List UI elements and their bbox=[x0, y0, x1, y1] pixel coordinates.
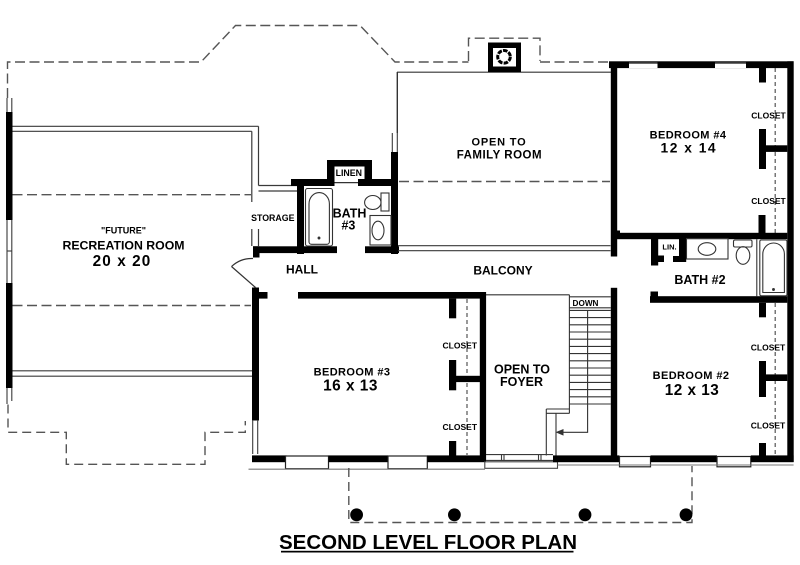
svg-text:"FUTURE": "FUTURE" bbox=[101, 226, 146, 236]
svg-text:#3: #3 bbox=[341, 218, 355, 232]
svg-text:CLOSET: CLOSET bbox=[751, 421, 786, 431]
svg-text:CLOSET: CLOSET bbox=[751, 343, 786, 353]
svg-text:HALL: HALL bbox=[286, 263, 318, 277]
svg-text:CLOSET: CLOSET bbox=[443, 422, 478, 432]
svg-text:16 x 13: 16 x 13 bbox=[323, 378, 378, 395]
svg-text:CLOSET: CLOSET bbox=[751, 111, 786, 121]
svg-text:SECOND LEVEL FLOOR PLAN: SECOND LEVEL FLOOR PLAN bbox=[279, 531, 577, 554]
svg-text:CLOSET: CLOSET bbox=[443, 341, 478, 351]
svg-text:BEDROOM #2: BEDROOM #2 bbox=[653, 370, 730, 382]
svg-text:CLOSET: CLOSET bbox=[751, 196, 786, 206]
svg-text:12 x 14: 12 x 14 bbox=[661, 140, 718, 155]
svg-text:FAMILY ROOM: FAMILY ROOM bbox=[457, 149, 542, 161]
svg-text:STORAGE: STORAGE bbox=[251, 213, 294, 223]
svg-text:BALCONY: BALCONY bbox=[473, 264, 532, 278]
svg-text:FOYER: FOYER bbox=[500, 375, 543, 389]
svg-text:RECREATION ROOM: RECREATION ROOM bbox=[62, 239, 184, 253]
svg-text:OPEN TO: OPEN TO bbox=[472, 136, 527, 148]
svg-text:DOWN: DOWN bbox=[573, 299, 599, 308]
svg-text:12 x 13: 12 x 13 bbox=[665, 382, 720, 399]
svg-text:20 x 20: 20 x 20 bbox=[93, 253, 152, 270]
svg-text:LINEN: LINEN bbox=[336, 168, 362, 178]
svg-text:BATH #2: BATH #2 bbox=[674, 273, 725, 287]
svg-text:BEDROOM #3: BEDROOM #3 bbox=[314, 366, 391, 378]
svg-text:LIN.: LIN. bbox=[662, 243, 676, 252]
